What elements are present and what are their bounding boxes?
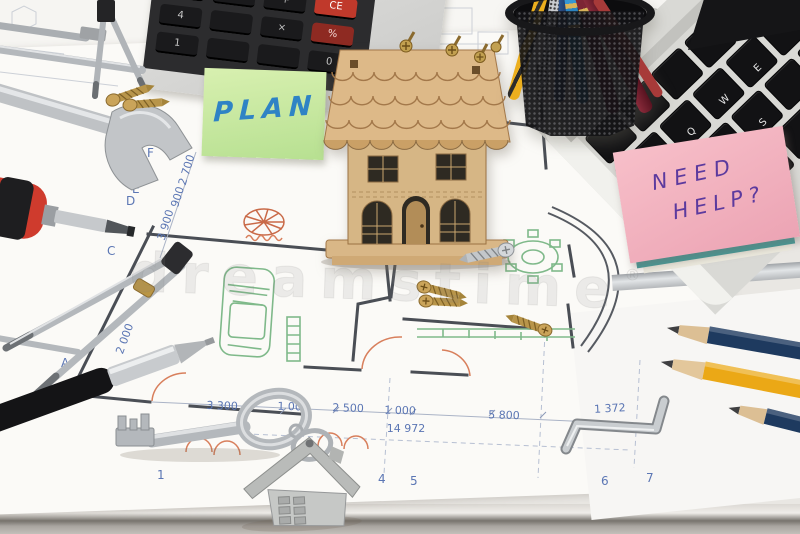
plan-table-center	[522, 250, 544, 264]
axis-dashed-lines	[200, 333, 640, 478]
wall-path	[568, 246, 574, 347]
dim-label: 2 000	[113, 322, 136, 356]
desk-photo: 3 300 1 000 2 500 1 000 5 800 14 972 1 3…	[0, 0, 800, 534]
plan-stairs	[287, 317, 300, 361]
wall-path	[404, 319, 540, 329]
plan-car	[219, 266, 275, 357]
wall-path	[148, 234, 338, 251]
calculator-key-4: 4	[158, 4, 202, 30]
dim-label: 1 000	[277, 400, 309, 414]
chair	[528, 230, 538, 237]
sketch-hexagon	[12, 6, 36, 30]
calculator-key-plus: +	[263, 0, 307, 14]
wall-path	[305, 367, 467, 375]
sketch-lines	[0, 46, 118, 86]
grid-number: 5	[410, 474, 418, 488]
plan-note-text: PLAN	[213, 90, 314, 128]
dim-label: 2 500	[332, 401, 364, 415]
dim-label: 2 700	[176, 153, 198, 187]
calculator-key	[209, 10, 253, 36]
calculator-key	[256, 44, 300, 70]
sticky-note-need-help: NEED HELP?	[613, 125, 800, 283]
stair-rungs	[287, 326, 300, 353]
grid-number: 6	[601, 474, 609, 488]
door-arc	[362, 337, 402, 369]
grid-letter: F	[147, 146, 154, 160]
roof-vent	[472, 66, 480, 74]
car-lines	[227, 285, 270, 306]
dim-label: 1 000	[384, 404, 416, 418]
calculator-key-times: ×	[260, 16, 304, 42]
chair	[552, 264, 562, 271]
grid-letters: F E D C A	[61, 146, 154, 370]
dim-label: 3 300	[206, 399, 238, 413]
door	[406, 201, 426, 244]
grid-number: 2	[254, 478, 262, 492]
door-arc	[152, 373, 186, 401]
door-knob	[420, 224, 424, 228]
sticky-note-plan: PLAN	[202, 68, 327, 160]
grid-number: 4	[378, 472, 386, 486]
dim-label: 900	[168, 185, 187, 209]
dim-label: 1 372	[594, 401, 626, 416]
plan-cabinet	[417, 329, 575, 341]
dim-label: 5 800	[488, 408, 520, 422]
orange-zigzag	[246, 236, 282, 241]
calculator-key	[212, 0, 256, 8]
calculator-key-1: 1	[155, 31, 199, 57]
bay-window-wall	[548, 207, 619, 352]
calculator-key-7: 7	[162, 0, 206, 2]
dim-total-label: 14 972	[387, 422, 426, 435]
roof-vent	[350, 60, 358, 68]
grid-letter: C	[107, 244, 115, 258]
calculator-key	[206, 38, 250, 64]
house-base-lip	[332, 256, 502, 265]
wall-path	[88, 396, 300, 414]
calculator-key-ce: CE	[314, 0, 358, 20]
wall-curve	[548, 213, 609, 346]
pen-holder	[505, 0, 655, 148]
grid-letter: D	[126, 194, 135, 208]
grid-numbers: 1 2 4 5 6 7	[157, 468, 654, 492]
wooden-house-model	[316, 44, 520, 272]
grid-number: 7	[646, 471, 654, 485]
grid-letter: A	[61, 356, 70, 370]
car-roof	[228, 303, 266, 339]
car-rear	[228, 345, 262, 349]
door-arc	[442, 350, 470, 376]
chair	[528, 276, 538, 283]
grid-number: 1	[157, 468, 165, 482]
window-arcs	[186, 433, 368, 455]
